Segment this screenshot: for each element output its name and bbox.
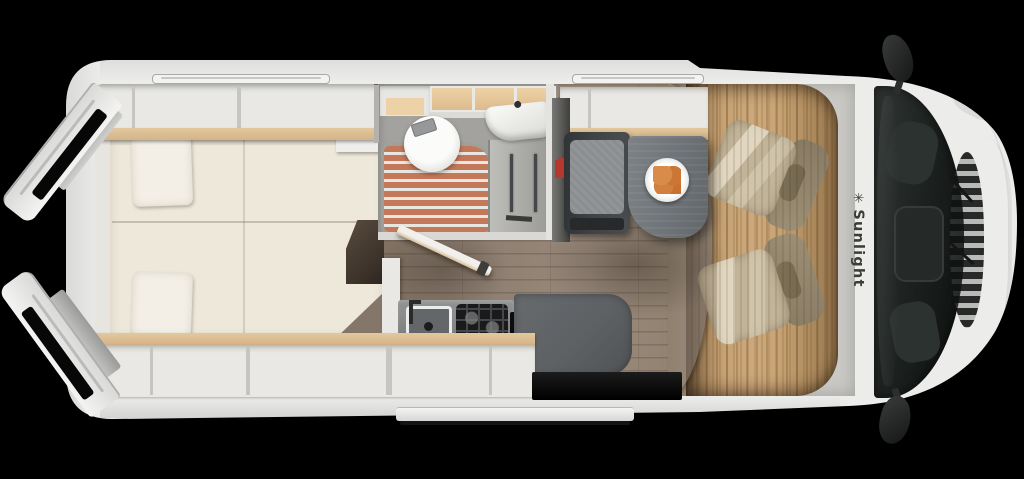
brand-lettering: ✳ Sunlight [840,168,876,312]
sunlight-star-icon: ✳ [852,192,865,203]
bathroom-sink [484,101,551,143]
bathroom-cabinet-left [380,86,430,116]
cabinet-divider [132,86,135,128]
sink-faucet [514,101,522,109]
sliding-door-opening [532,372,682,400]
bench-base [570,218,624,230]
bed-mattress-seam [243,139,245,336]
shower-sill [506,215,532,222]
door-handle [476,260,490,276]
rail-groove [161,77,321,79]
roof-awning-rail [572,74,704,84]
cabinet-divider [489,347,492,395]
rail-groove [581,77,695,79]
pillow [131,271,193,337]
shower-rail [534,154,537,212]
cabinet-divider [386,347,392,395]
cabinet-divider [237,86,241,128]
bed-mattress-seam [112,221,382,223]
food-pastries [653,166,681,194]
overhead-cabinet-bottom-wood-trim [95,333,535,345]
seat-strap [717,254,735,348]
kitchen-faucet-spout [409,300,421,304]
scene-background: ✳ Sunlight [0,0,1024,479]
brand-name-text: Sunlight [850,209,866,287]
toilet-control [411,118,438,138]
kitchen-faucet [409,302,413,324]
bench-cushion [570,140,624,214]
bathroom [378,84,558,240]
cabinet-divider [246,347,250,395]
cabinet-divider [150,347,153,395]
kitchen-faucet-base [424,322,433,331]
overhead-cabinet-rear-wood-trim [97,128,377,140]
entry-step-shadow [400,421,630,425]
windshield-glare [877,96,899,386]
cabinet-divider [588,88,591,128]
cabinet-divider [472,88,475,110]
dashboard-silhouette [894,206,944,282]
seatbelt-buckle [558,158,564,178]
wall-divider [374,85,379,143]
pillow [131,135,193,207]
bathroom-cabinet-wood-shelf [386,98,424,115]
overhead-cabinet-dinette [560,87,708,128]
dinette-bench-seat [564,132,630,234]
overhead-cabinet-bottom-row [95,345,535,397]
toilet [404,116,460,172]
roof-awning-rail [152,74,330,84]
electric-entry-step [396,407,634,421]
brand-lettering-rotated: ✳ Sunlight [840,168,876,312]
seat-strap [749,246,765,348]
shower-rail [510,154,513,212]
